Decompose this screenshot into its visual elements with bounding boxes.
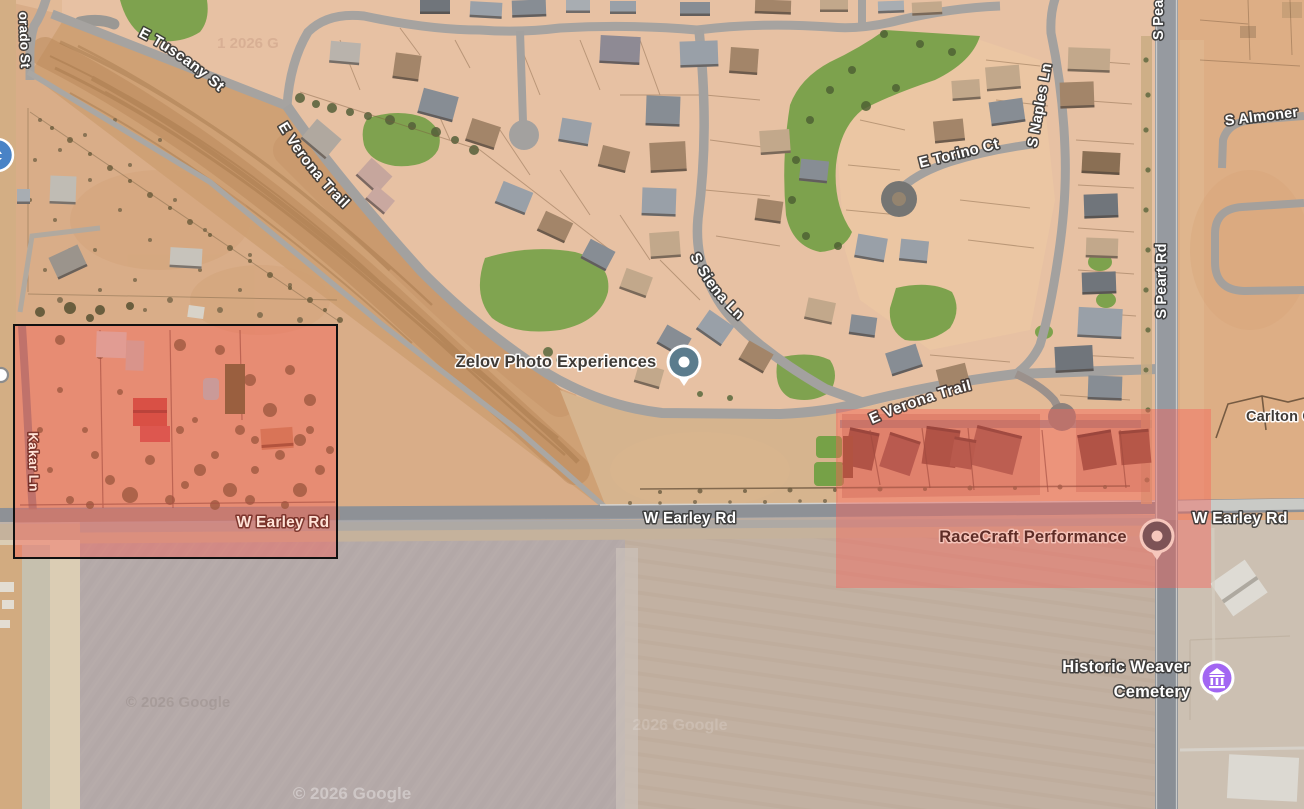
svg-text:Historic Weaver: Historic Weaver: [1062, 658, 1190, 676]
svg-text:S Peart Rd: S Peart Rd: [1151, 0, 1167, 40]
svg-text:RaceCraft Performance: RaceCraft Performance: [939, 528, 1127, 546]
svg-text:S Peart Rd: S Peart Rd: [1154, 243, 1170, 318]
svg-text:W Earley Rd: W Earley Rd: [1192, 510, 1288, 527]
svg-text:© 2026 Google: © 2026 Google: [126, 694, 230, 711]
svg-text:2026 Google: 2026 Google: [632, 717, 727, 734]
svg-text:orado St: orado St: [16, 11, 33, 68]
svg-text:Carlton C: Carlton C: [1246, 409, 1304, 425]
svg-text:W Earley Rd: W Earley Rd: [237, 514, 330, 531]
svg-text:W Earley Rd: W Earley Rd: [644, 510, 737, 527]
svg-text:© 2026 Google: © 2026 Google: [293, 784, 411, 803]
svg-text:Zelov Photo Experiences: Zelov Photo Experiences: [456, 353, 657, 371]
svg-text:Kakar Ln: Kakar Ln: [25, 432, 41, 492]
svg-text:1 2026 G: 1 2026 G: [217, 35, 279, 52]
svg-text:Cemetery: Cemetery: [1114, 683, 1191, 701]
